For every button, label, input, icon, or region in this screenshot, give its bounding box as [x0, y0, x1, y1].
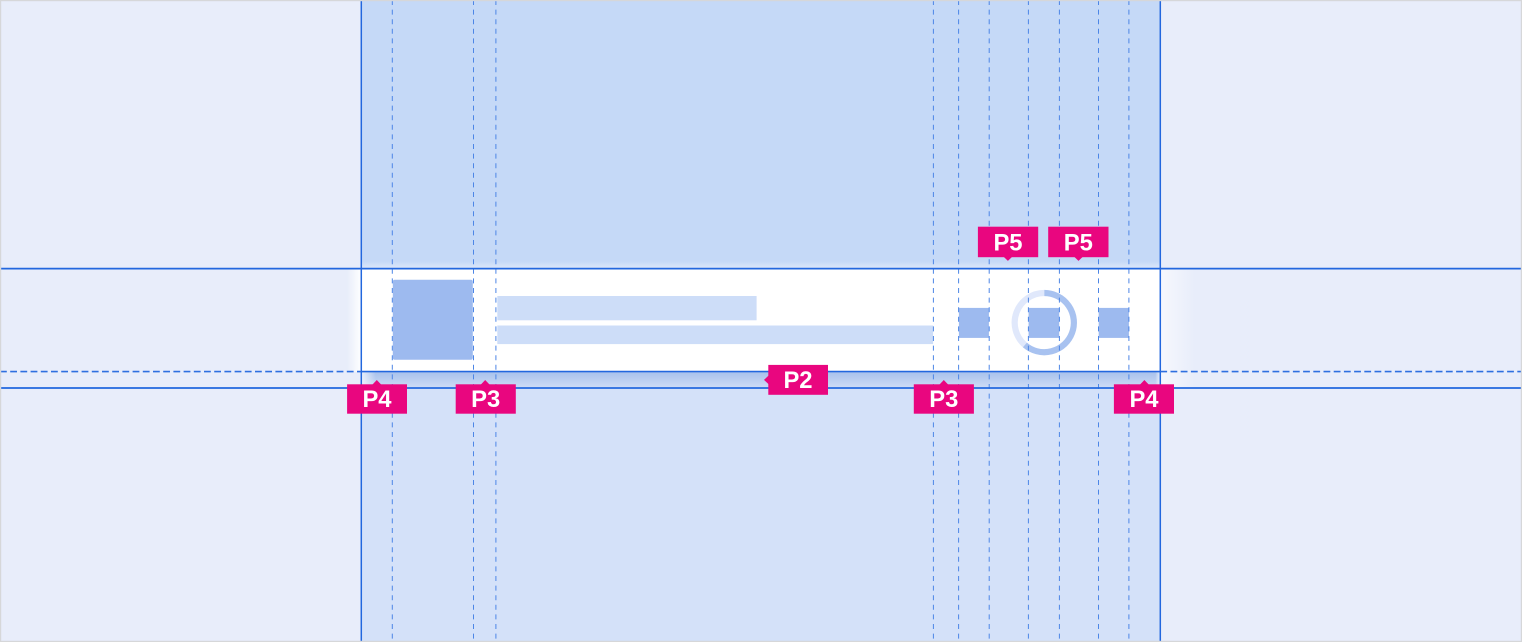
svg-text:P4: P4	[362, 386, 392, 413]
svg-text:P5: P5	[1064, 229, 1093, 256]
svg-text:P4: P4	[1129, 386, 1159, 413]
svg-text:P3: P3	[471, 386, 500, 413]
svg-text:P2: P2	[783, 367, 812, 394]
svg-text:P5: P5	[993, 229, 1022, 256]
svg-text:P3: P3	[929, 386, 958, 413]
